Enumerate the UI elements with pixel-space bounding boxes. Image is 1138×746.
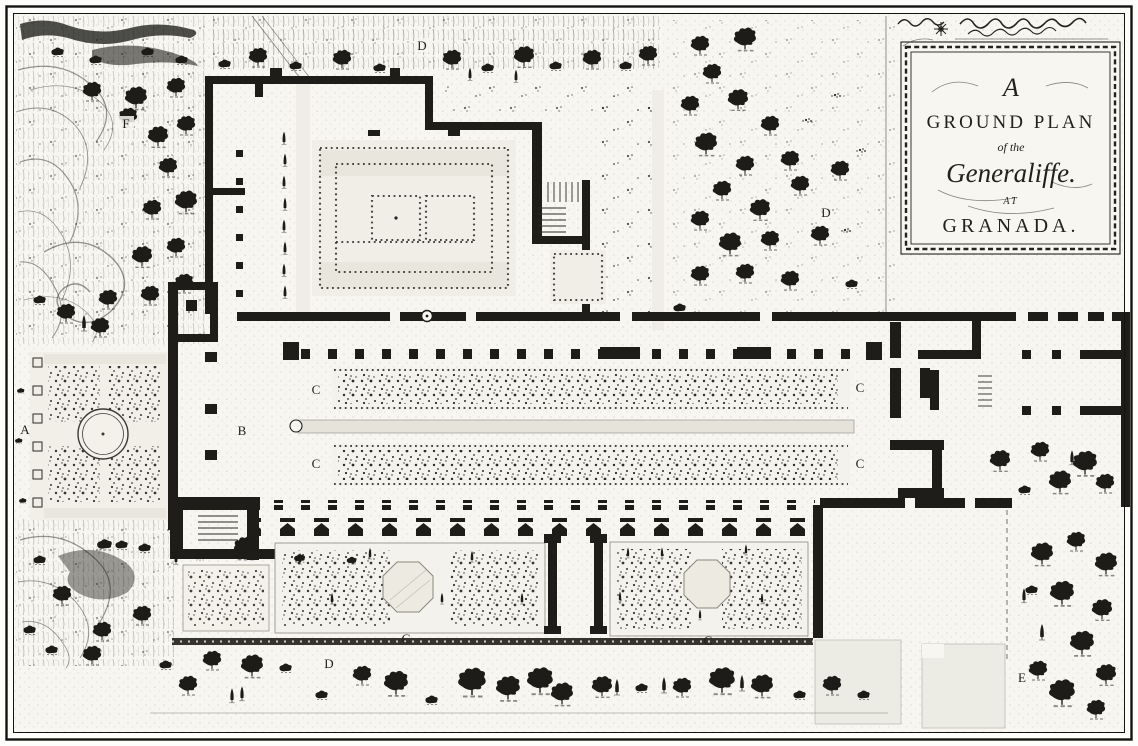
flower-bed-upper bbox=[332, 368, 850, 410]
southeast-court-bed bbox=[550, 250, 606, 304]
north-gallery-pillars bbox=[300, 347, 866, 359]
plan-label-e-grove: E bbox=[1018, 670, 1026, 685]
plan-canvas: D F D A B C C C C C C D E A GROUND PLAN … bbox=[0, 0, 1138, 746]
plan-label-c-garden-east: C bbox=[704, 633, 713, 648]
plan-label-a-parterre: A bbox=[20, 422, 30, 437]
lower-garden-east bbox=[610, 542, 808, 636]
south-colonnade-row2 bbox=[255, 518, 815, 536]
terrain-southwest-ravine bbox=[16, 518, 174, 668]
parterre-lower-walk bbox=[44, 508, 166, 518]
cartouche-initial: A bbox=[1001, 73, 1019, 102]
plan-label-b-pavilion: B bbox=[238, 423, 247, 438]
plan-label-c-lower-bed-east: C bbox=[856, 456, 865, 471]
south-colonnade-row1 bbox=[255, 500, 815, 510]
cartouche-generalife: Generaliffe. bbox=[946, 158, 1076, 188]
title-block: A GROUND PLAN of the Generaliffe. AT GRA… bbox=[898, 19, 1120, 255]
flower-bed-lower bbox=[332, 444, 850, 486]
cartouche-of-the: of the bbox=[998, 140, 1026, 154]
seal-star-icon bbox=[934, 22, 948, 36]
plan-label-c-lower-bed-west: C bbox=[312, 456, 321, 471]
water-channel bbox=[298, 420, 854, 433]
plan-label-c-upper-bed-east: C bbox=[856, 380, 865, 395]
plan-label-f-hill-grove: F bbox=[122, 116, 129, 131]
hill-road bbox=[652, 90, 664, 330]
plan-label-d-tree-belt: D bbox=[324, 656, 333, 671]
pool-jet bbox=[394, 216, 397, 219]
cartouche-granada: GRANADA. bbox=[943, 215, 1080, 237]
plan-label-d-orchard: D bbox=[821, 205, 830, 220]
plan-label-d-hillside: D bbox=[417, 38, 426, 53]
far-west-bed bbox=[188, 570, 264, 626]
cartouche-at: AT bbox=[1002, 196, 1018, 207]
cartouche-ground-plan: GROUND PLAN bbox=[927, 112, 1096, 133]
inner-court-garden bbox=[312, 140, 516, 296]
palace-walk bbox=[296, 84, 310, 320]
lower-garden-west bbox=[275, 543, 545, 633]
west-parterre-garden bbox=[30, 352, 172, 520]
channel-basin bbox=[290, 420, 302, 432]
plan-label-c-upper-bed-west: C bbox=[312, 382, 321, 397]
engraved-ground-plan-plate: D F D A B C C C C C C D E A GROUND PLAN … bbox=[0, 0, 1138, 746]
plan-label-c-garden-west: C bbox=[402, 631, 411, 646]
parterre-upper-walk bbox=[44, 354, 166, 364]
octagon-fountain-west bbox=[383, 562, 433, 612]
octagon-fountain-east bbox=[684, 560, 730, 608]
